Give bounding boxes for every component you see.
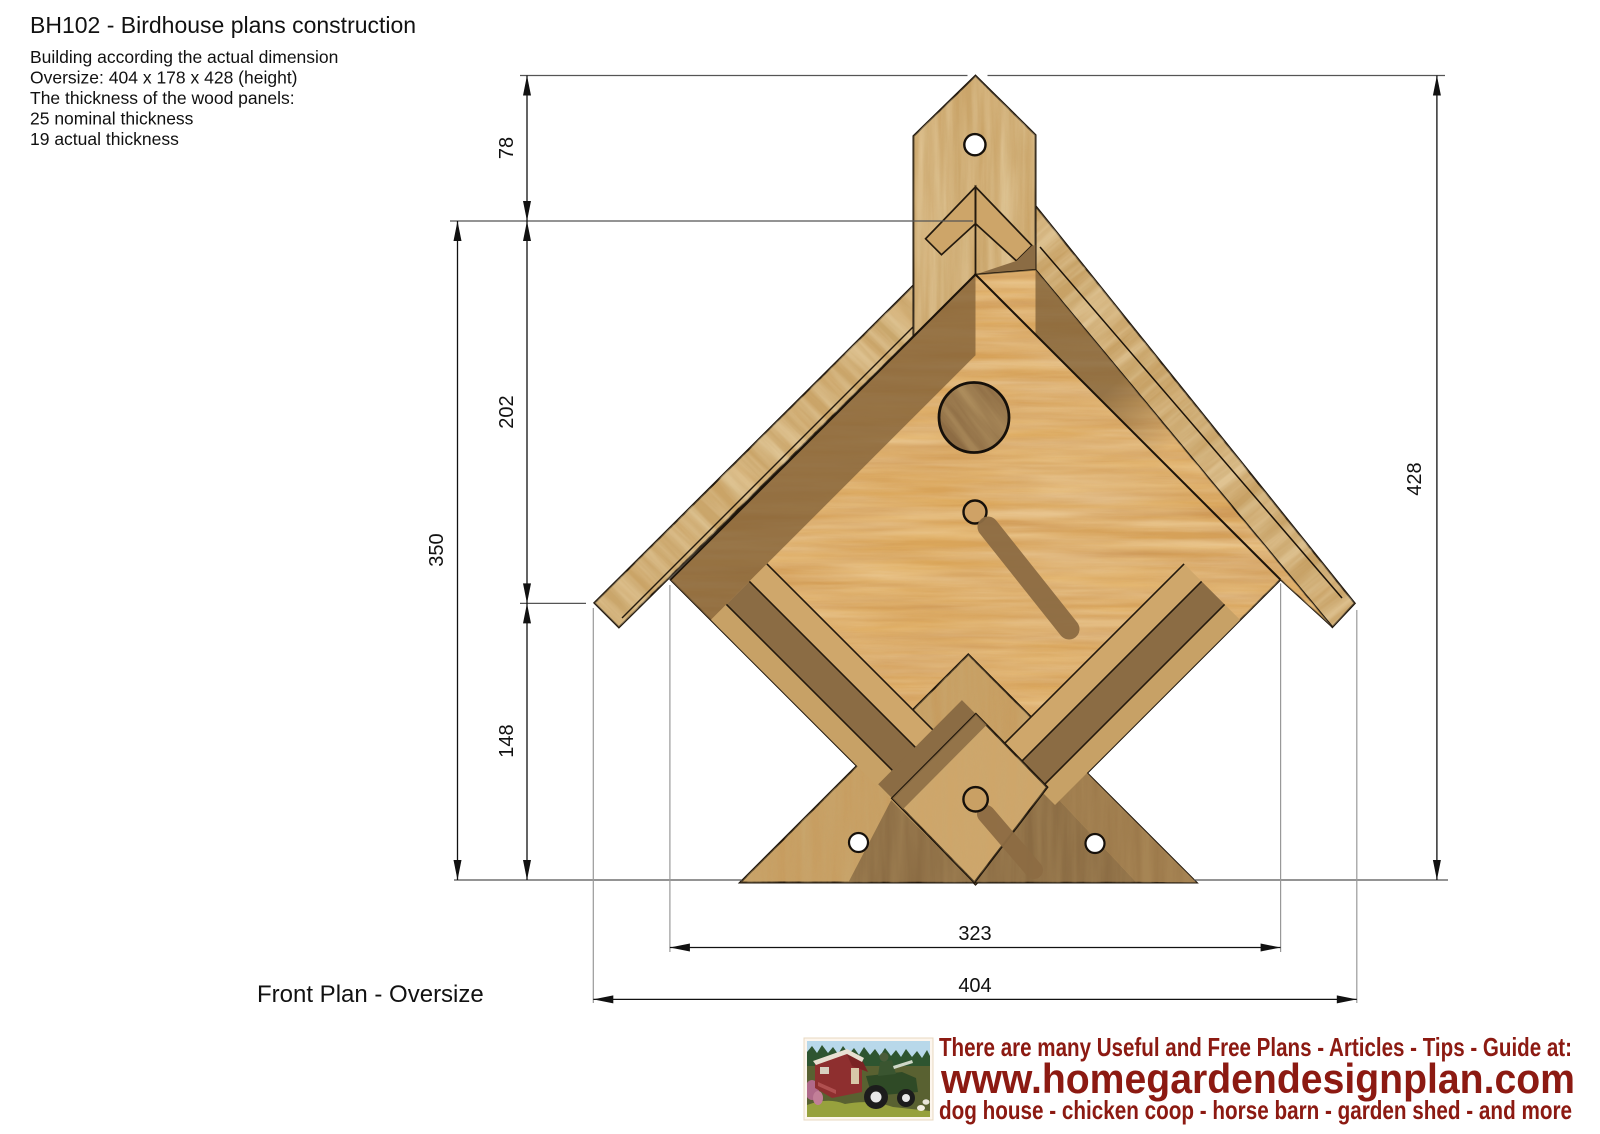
svg-text:148: 148 xyxy=(496,724,518,757)
svg-text:Oversize: 404 x 178 x 428 (hei: Oversize: 404 x 178 x 428 (height) xyxy=(30,68,298,88)
svg-text:25 nominal thickness: 25 nominal thickness xyxy=(30,109,194,129)
svg-text:202: 202 xyxy=(496,395,518,428)
svg-text:404: 404 xyxy=(958,975,991,997)
svg-text:BH102 - Birdhouse plans constr: BH102 - Birdhouse plans construction xyxy=(30,12,416,38)
svg-text:dog house - chicken coop - hor: dog house - chicken coop - horse barn - … xyxy=(939,1095,1572,1125)
svg-text:428: 428 xyxy=(1404,462,1426,495)
svg-text:323: 323 xyxy=(958,923,991,945)
svg-text:350: 350 xyxy=(426,533,448,566)
svg-text:19 actual thickness: 19 actual thickness xyxy=(30,129,179,149)
svg-text:78: 78 xyxy=(496,137,518,159)
svg-text:Front Plan - Oversize: Front Plan - Oversize xyxy=(257,981,484,1008)
svg-text:Building according the actual: Building according the actual dimension xyxy=(30,47,338,67)
svg-text:The thickness of the wood pane: The thickness of the wood panels: xyxy=(30,88,295,108)
